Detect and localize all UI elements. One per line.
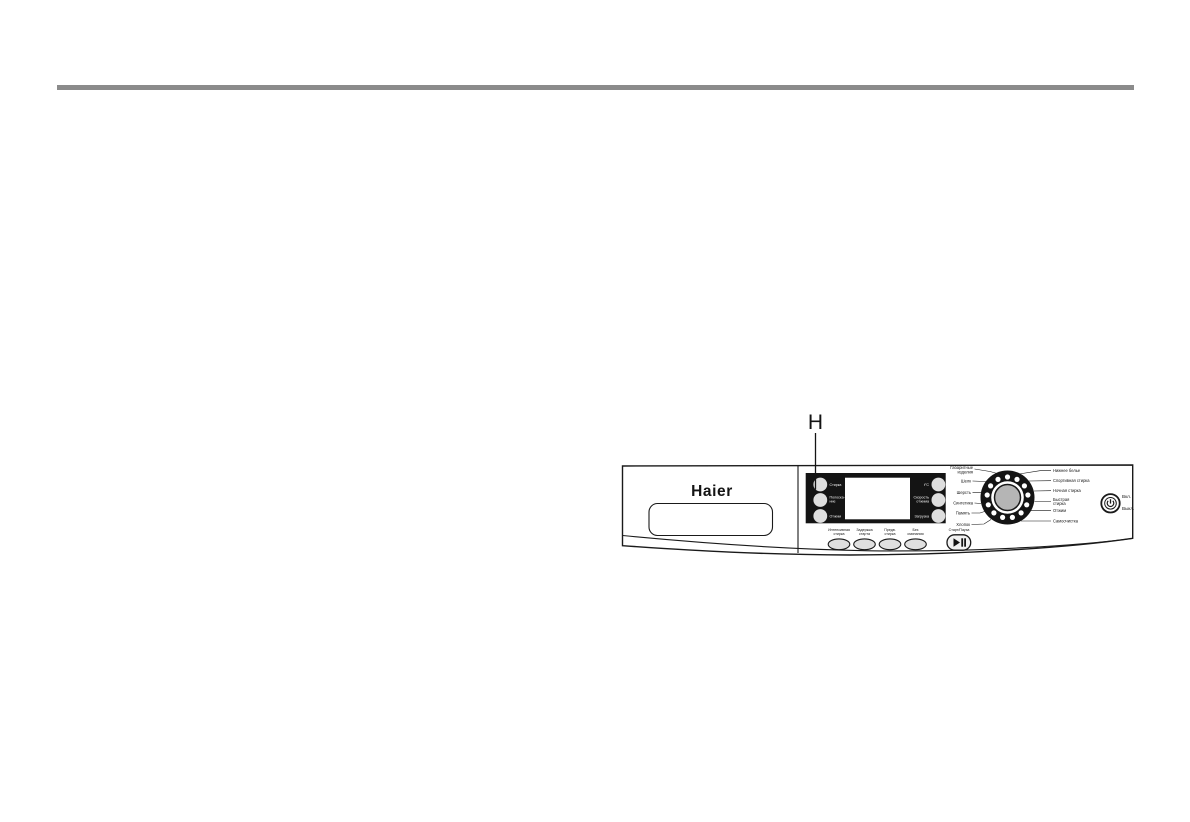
spin-phase-label: Отжим [830,514,842,518]
start-pause-label: Старт/Пауза [949,528,970,532]
program-night-label: Ночная стирка [1053,488,1082,493]
prewash-label-2: стирка [884,532,895,536]
dial-dot [988,483,993,488]
anti-crease-label-2: сминания [907,532,923,536]
temperature-label: t°C [924,483,929,487]
power-off-label: Выкл. [1122,506,1134,511]
dial-dot [1005,474,1010,479]
program-dial[interactable] [981,471,1035,525]
rinse-phase-label-2: ние [830,500,836,504]
dial-dot [991,510,996,515]
program-silk-label: Шелк [961,478,971,483]
spin-phase-button[interactable] [813,509,827,523]
delay-start-label-2: старта [859,532,870,536]
dial-dot [1000,515,1005,520]
power-button[interactable] [1101,494,1119,512]
program-underwear-label: Нижнее белье [1053,468,1081,473]
dial-dot [1014,477,1019,482]
dial-dot [1022,483,1027,488]
power-on-label: Вкл. [1122,494,1131,499]
load-button[interactable] [932,509,946,523]
dial-dot [995,477,1000,482]
dial-dot [1010,515,1015,520]
display-screen [845,478,910,520]
wash-phase-label: Стирка [830,483,842,487]
rinse-phase-button[interactable] [813,493,827,507]
temperature-button[interactable] [932,478,946,492]
program-wool-label: Шерсть [957,490,971,495]
intensive-wash-label-2: стирка [833,532,844,536]
dial-dot [1025,492,1030,497]
prewash-button[interactable] [879,539,901,550]
anti-crease-button[interactable] [905,539,927,550]
dial-dot [1024,502,1029,507]
dial-dot [1019,510,1024,515]
section-divider-rule [57,85,1134,90]
program-quick-label-2: стирка [1053,501,1066,506]
control-panel-diagram: Haier Стирка Полоска- ние Отжим t°C Скор… [600,400,1150,570]
program-spin-label: Отжим [1053,508,1066,513]
spin-speed-button[interactable] [932,493,946,507]
load-label: Загрузка [914,514,929,518]
program-synthetics-label: Синтетика [953,501,974,506]
dial-dot [985,492,990,497]
program-bulky-label-2: изделия [958,469,974,474]
spin-speed-label-2: отжима [916,500,929,504]
program-sport-label: Спортивная стирка [1053,478,1090,483]
delay-start-button[interactable] [854,539,876,550]
dial-knob[interactable] [995,485,1021,511]
dial-dot [986,502,991,507]
callout-h-label: H [808,411,823,434]
intensive-wash-button[interactable] [828,539,850,550]
brand-logo: Haier [691,483,733,500]
program-selfclean-label: Самоочистка [1053,519,1079,524]
program-memory-label: Память [956,511,970,516]
program-cotton-label: Хлопок [956,522,970,527]
